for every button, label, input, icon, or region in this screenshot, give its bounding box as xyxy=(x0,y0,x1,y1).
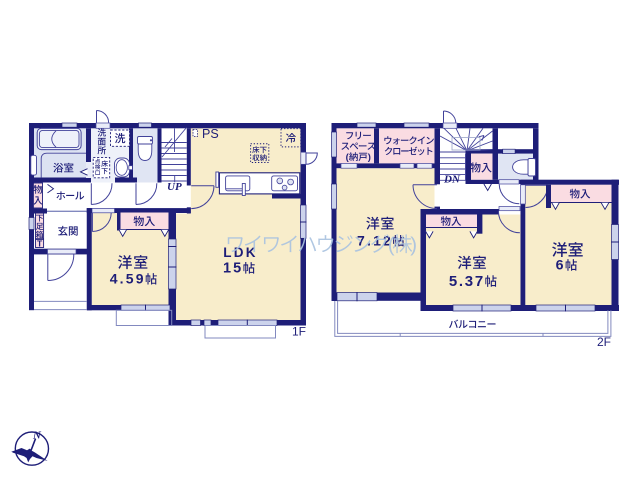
svg-text:N: N xyxy=(32,430,42,442)
svg-text:LDK: LDK xyxy=(223,245,258,260)
svg-text:1F: 1F xyxy=(292,325,306,339)
svg-text:2F: 2F xyxy=(597,335,611,349)
svg-text:4.59: 4.59 xyxy=(110,271,146,287)
svg-text:UP: UP xyxy=(167,181,182,193)
svg-text:5.37: 5.37 xyxy=(449,273,485,290)
svg-text:6: 6 xyxy=(556,258,564,274)
svg-text:): ) xyxy=(368,152,371,163)
svg-text:T: T xyxy=(37,238,43,248)
svg-text:PS: PS xyxy=(202,127,219,141)
svg-text:DN: DN xyxy=(443,173,461,185)
svg-text:15: 15 xyxy=(223,261,243,277)
